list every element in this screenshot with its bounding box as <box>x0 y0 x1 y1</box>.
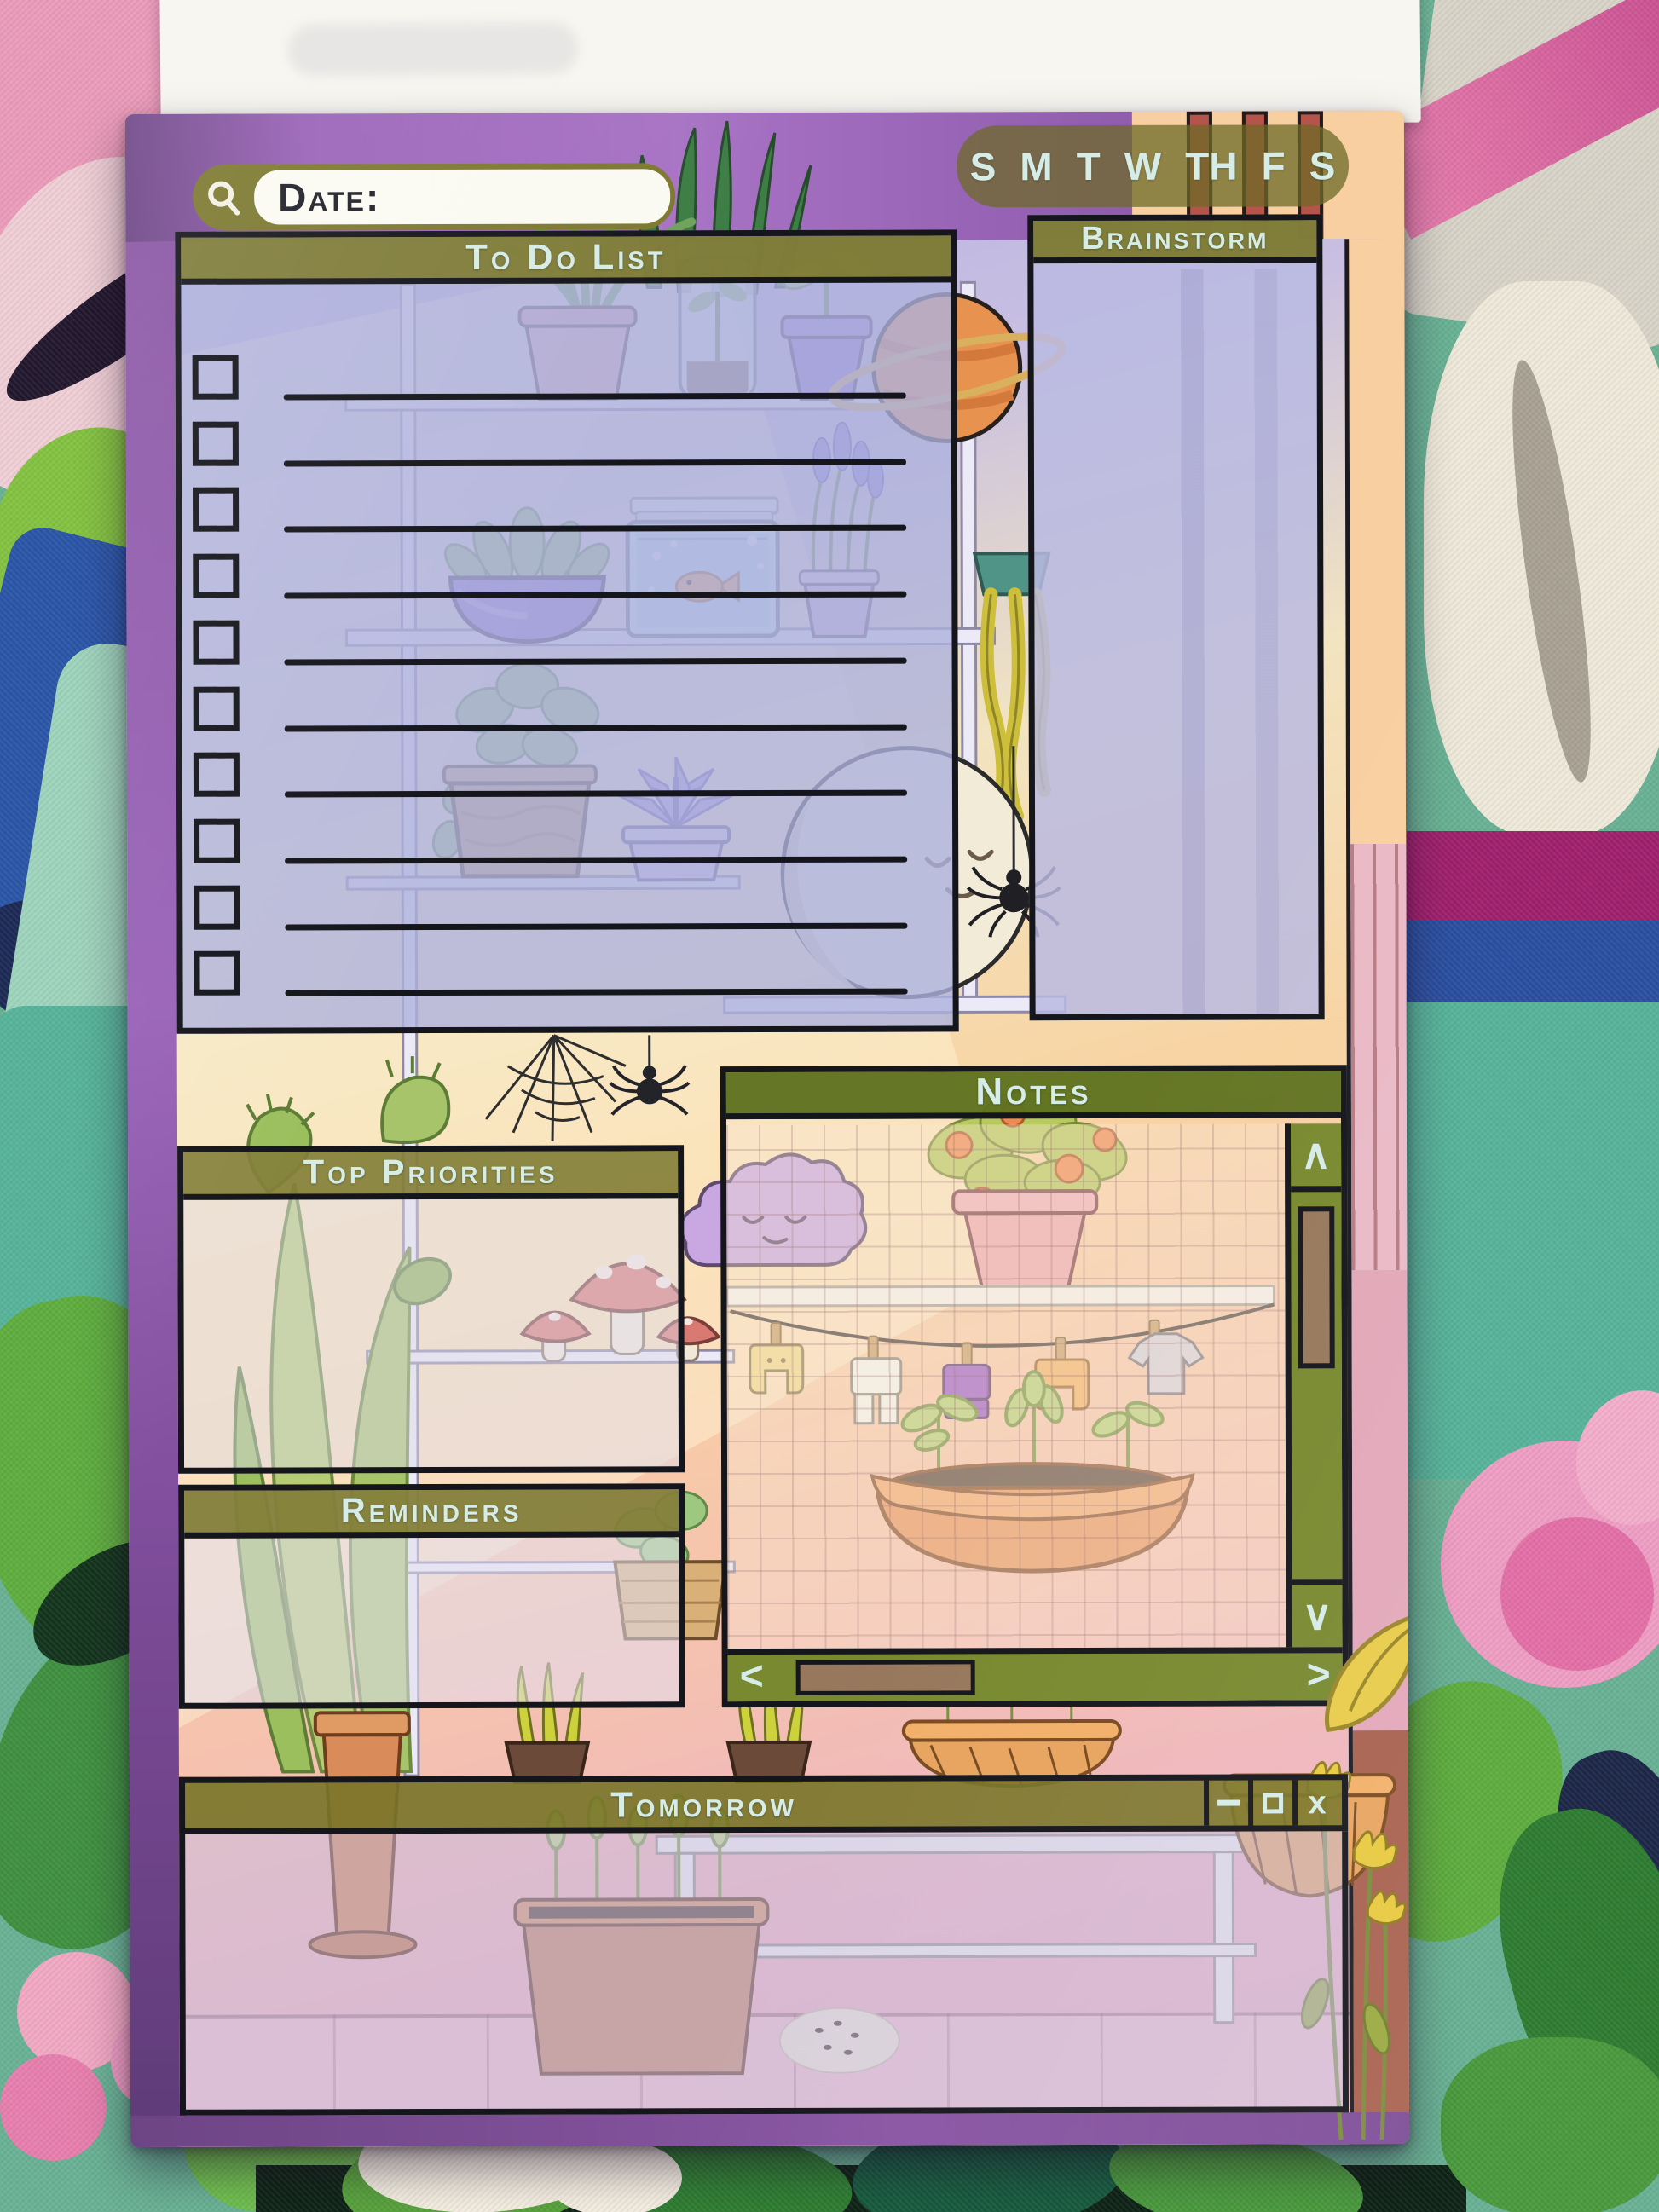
white-flower-shape <box>546 2140 682 2212</box>
flower-shape <box>0 2054 107 2161</box>
todo-line[interactable] <box>285 657 907 665</box>
todo-line[interactable] <box>284 459 906 466</box>
day-s[interactable]: S <box>970 143 997 189</box>
todo-checkbox[interactable] <box>193 620 239 664</box>
day-s[interactable]: S <box>1309 142 1336 188</box>
todo-checkbox[interactable] <box>194 951 240 996</box>
brainstorm-panel: Brainstorm <box>1027 214 1324 1020</box>
ink-ghosting <box>288 22 579 76</box>
top-priorities-panel: Top Priorities <box>177 1145 685 1474</box>
leaf-shape <box>1441 2037 1659 2212</box>
todo-checkbox[interactable] <box>193 421 239 465</box>
todo-line[interactable] <box>284 525 906 533</box>
day-f[interactable]: F <box>1262 142 1286 188</box>
rose-inner-shape <box>1500 1517 1654 1671</box>
date-bar: Date: <box>193 163 675 230</box>
reminders-panel: Reminders <box>178 1483 685 1709</box>
vertical-scrollbar[interactable]: ∧ ∨ <box>1285 1123 1343 1647</box>
horizontal-scrollbar[interactable]: < > <box>728 1647 1343 1701</box>
day-th[interactable]: TH <box>1185 143 1237 189</box>
todo-line[interactable] <box>285 856 907 863</box>
tomorrow-header: Tomorrow <box>610 1783 916 1825</box>
close-icon: x <box>1308 1787 1326 1819</box>
blue-band-shape <box>1407 921 1659 1006</box>
notes-header: Notes <box>726 1071 1341 1119</box>
todo-line[interactable] <box>284 592 906 599</box>
brainstorm-header: Brainstorm <box>1033 220 1316 263</box>
day-initials: SMTWTHFS <box>957 124 1349 207</box>
yellow-leaf-illustration <box>1314 1607 1409 1735</box>
todo-checkbox[interactable] <box>193 355 239 400</box>
date-input[interactable]: Date: <box>254 169 670 224</box>
window-controls: x <box>1204 1780 1337 1825</box>
scroll-up-button[interactable]: ∧ <box>1291 1123 1341 1192</box>
minimize-button[interactable] <box>1204 1781 1248 1826</box>
minimize-icon <box>1217 1800 1240 1806</box>
day-m[interactable]: M <box>1020 143 1052 189</box>
tomorrow-title-bar: Tomorrow x <box>179 1774 1348 1834</box>
tomorrow-body[interactable] <box>179 1831 1349 2116</box>
todo-line[interactable] <box>284 393 906 401</box>
brainstorm-body[interactable] <box>1033 269 1318 1014</box>
day-t[interactable]: T <box>1077 143 1101 189</box>
close-button[interactable]: x <box>1292 1780 1337 1825</box>
todo-line[interactable] <box>285 724 907 731</box>
planner-sheet: Date: SMTWTHFS To Do List Brainstorm Not… <box>125 111 1409 2147</box>
todo-checkbox[interactable] <box>193 488 239 532</box>
todo-line[interactable] <box>285 922 907 930</box>
todo-checkbox[interactable] <box>194 885 240 929</box>
spider-icon <box>610 1035 689 1114</box>
todo-checkbox[interactable] <box>194 819 240 863</box>
magenta-band-shape <box>1407 831 1659 925</box>
vertical-scroll-thumb[interactable] <box>1298 1206 1334 1368</box>
todo-line[interactable] <box>286 989 908 996</box>
spider-web-icon <box>486 1035 626 1141</box>
reminders-body[interactable] <box>184 1537 679 1703</box>
maximize-button[interactable] <box>1248 1780 1292 1825</box>
photo-scene: Date: SMTWTHFS To Do List Brainstorm Not… <box>0 0 1659 2212</box>
top-priorities-body[interactable] <box>183 1198 679 1468</box>
todo-checkbox[interactable] <box>193 554 239 598</box>
maximize-icon <box>1263 1793 1283 1813</box>
notes-body[interactable] <box>726 1123 1343 1701</box>
reminders-header: Reminders <box>184 1489 679 1539</box>
day-w[interactable]: W <box>1124 143 1162 189</box>
search-icon[interactable] <box>193 179 254 217</box>
todo-checkbox[interactable] <box>194 686 240 731</box>
todo-checkbox[interactable] <box>194 753 240 797</box>
todo-rows[interactable] <box>181 235 952 1027</box>
todo-panel: To Do List <box>175 229 958 1033</box>
scroll-left-button[interactable]: < <box>740 1656 764 1697</box>
todo-line[interactable] <box>285 790 907 798</box>
horizontal-scroll-thumb[interactable] <box>796 1660 975 1695</box>
notes-panel: Notes ∧ ∨ < > <box>720 1065 1349 1707</box>
top-priorities-header: Top Priorities <box>183 1151 678 1200</box>
